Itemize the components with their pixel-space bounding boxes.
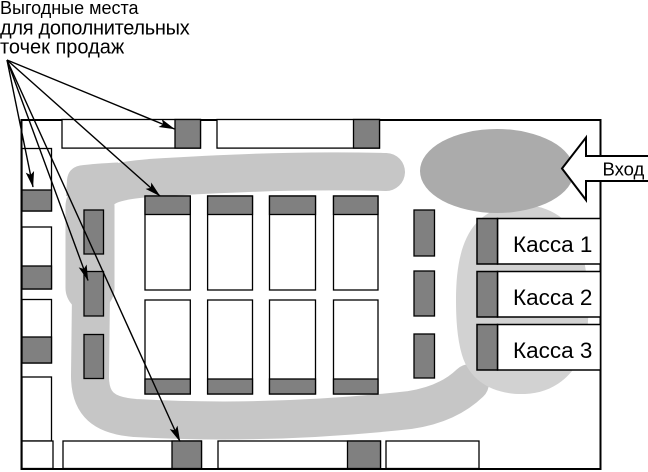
svg-text:Касса 1: Касса 1 <box>513 232 592 257</box>
svg-text:точек продаж: точек продаж <box>0 37 125 59</box>
svg-text:Вход: Вход <box>603 159 645 180</box>
svg-text:Выгодные места: Выгодные места <box>0 0 140 18</box>
svg-text:Касса 2: Касса 2 <box>513 285 592 310</box>
svg-text:Касса 3: Касса 3 <box>513 338 592 363</box>
